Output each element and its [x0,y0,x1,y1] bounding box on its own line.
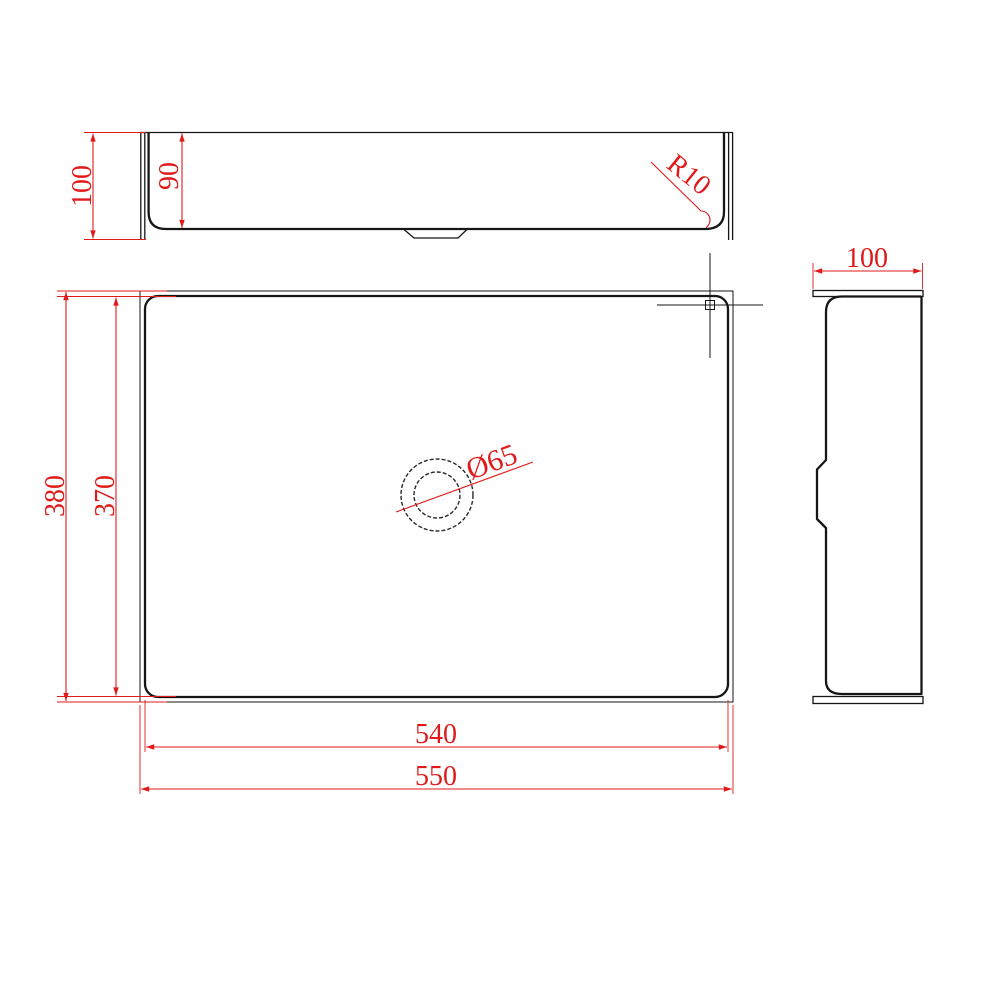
dim-side-total-width: 100 [813,243,923,289]
front-elevation-view [140,133,733,241]
side-elevation-view [813,291,923,704]
plan-outer-width-label: 550 [415,761,457,792]
front-drain-boss [404,230,467,239]
drain-inner-circle [414,472,460,518]
front-right-wall [729,133,733,241]
front-inner-depth-label: 90 [154,162,185,190]
plan-outer-depth-label: 380 [40,475,71,517]
plan-view [140,253,763,702]
dim-plan-inner-depth: 370 [57,297,176,697]
dim-front-inner-depth: 90 [154,134,185,229]
front-left-wall [141,133,145,241]
corner-center-crosshair [657,253,763,358]
drawing-sheet: 100 90 R10 Ø65 380 370 [0,0,1000,1000]
corner-radius-label: R10 [661,148,717,201]
plan-inner-width-label: 540 [415,719,457,750]
front-basin-profile [149,133,724,229]
drain-outer-circle [401,459,473,531]
side-body-profile [817,297,922,695]
dim-plan-inner-width: 540 [145,700,728,752]
plan-inner-basin [145,296,728,697]
technical-drawing: 100 90 R10 Ø65 380 370 [0,0,1000,1000]
plan-outer-rim [140,291,733,702]
dim-drain-diameter: Ø65 [396,438,533,512]
dim-front-total-height: 100 [67,133,146,240]
drain-diameter-label: Ø65 [462,438,522,487]
plan-inner-depth-label: 370 [90,475,121,517]
dim-corner-radius: R10 [651,148,717,227]
side-width-label: 100 [846,243,888,274]
side-bottom-rim [813,697,923,704]
front-height-label: 100 [67,165,98,207]
